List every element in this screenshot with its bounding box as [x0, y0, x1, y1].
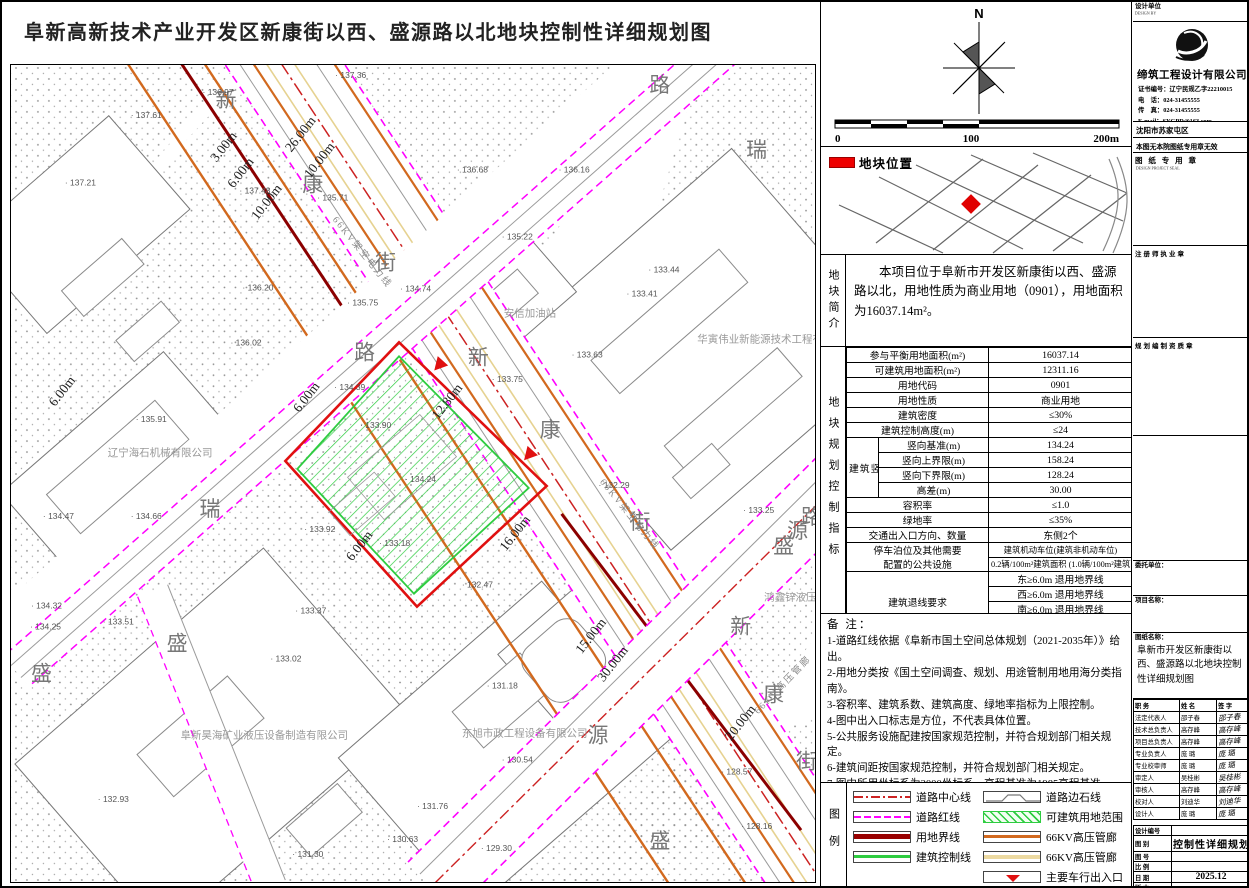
spot-elevation: · 133.90: [360, 420, 391, 430]
spot-elevation: · 134.32: [31, 601, 62, 611]
sig-signature: 庞 璐: [1217, 759, 1249, 771]
info-row: 日 期2025.12: [1134, 872, 1249, 883]
intro-text: 本项目位于阜新市开发区新康街以西、盛源路以北，用地性质为商业用地（0901），用…: [846, 255, 1131, 346]
site-intro-section: 地块简介 本项目位于阜新市开发区新康街以西、盛源路以北，用地性质为商业用地（09…: [821, 255, 1131, 347]
road-name-char: 盛: [167, 632, 188, 656]
project-name-label: 项目名称：: [1133, 596, 1249, 605]
param-row-vertical: 高差(m)30.00: [847, 483, 1132, 498]
legend-item: 道路红线: [853, 809, 979, 824]
sig-role: 专业负责人: [1134, 747, 1180, 759]
spot-elevation: · 134.24: [405, 474, 436, 484]
drawing-name-area: 图纸名称： 阜新市开发区新康街以西、盛源路以北地块控制性详细规划图: [1133, 633, 1249, 699]
centerline-swatch: [853, 791, 911, 803]
power1-swatch: [983, 831, 1041, 843]
spot-elevation: · 133.25: [743, 505, 774, 515]
param-row-vertical: 竖向上界限(m)158.24: [847, 453, 1132, 468]
spot-elevation: · 136.68: [457, 165, 488, 175]
project-seal-label: 图 纸 专 用 章: [1133, 153, 1249, 166]
company-fax: 传 真：024-31455555: [1138, 106, 1246, 117]
design-unit-label-en: DESIGN BY: [1133, 11, 1239, 16]
sig-name: 高存峰: [1180, 723, 1217, 735]
vertical-group-label: 建筑竖向界限: [847, 438, 879, 498]
curb-swatch: [983, 791, 1041, 803]
sig-name: 庞 璐: [1180, 747, 1217, 759]
spot-elevation: · 135.75: [347, 297, 378, 307]
note-item: 6-建筑间距按国家规范控制，并符合规划部门相关规定。: [827, 761, 1125, 777]
signature-row: 项目总负责人高存峰高存峰: [1134, 735, 1249, 747]
page-title: 阜新高新技术产业开发区新康街以西、盛源路以北地块控制性详细规划图: [24, 16, 712, 45]
spare-area: [1133, 436, 1249, 561]
road-name-char: 路: [354, 340, 375, 364]
spot-elevation: · 128.16: [741, 821, 772, 831]
spot-elevation: · 136.16: [559, 165, 590, 175]
legend-item: 可建筑用地范围: [983, 809, 1131, 824]
sig-name: 刘迪华: [1180, 795, 1217, 807]
project-name-area: 项目名称：: [1133, 596, 1249, 633]
param-row-vertical: 建筑竖向界限竖向基准(m)134.24: [847, 438, 1132, 453]
sig-name: 邵子春: [1180, 711, 1217, 723]
drawing-name-label: 图纸名称：: [1133, 633, 1249, 642]
sig-signature: 邵子春: [1217, 711, 1249, 723]
legend-item-label: 66KV高压管廊: [1046, 829, 1117, 845]
legend-item: 66KV高压管廊: [983, 849, 1131, 864]
sig-name: 庞 璐: [1180, 807, 1217, 819]
road-name-char: 新: [730, 615, 751, 639]
param-row: 交通出入口方向、数量东侧2个: [847, 528, 1132, 543]
legend-item-label: 道路中心线: [916, 789, 971, 805]
sig-role: 项目总负责人: [1134, 735, 1180, 747]
spot-elevation: · 133.02: [270, 654, 301, 664]
company-address: 沈阳市苏家屯区: [1133, 122, 1249, 138]
legend-item: 建筑控制线: [853, 849, 979, 864]
sig-signature: 刘迪华: [1217, 795, 1249, 807]
road-name-char: 盛: [31, 661, 52, 685]
note-item: 4-图中出入口标志是方位，不代表具体位置。: [827, 714, 1125, 730]
param-row: 用地性质商业用地: [847, 393, 1132, 408]
legend-column-right: 道路边石线可建筑用地范围66KV高压管廊66KV高压管廊主要车行出入口: [983, 789, 1131, 884]
sig-name: 高存峰: [1180, 783, 1217, 795]
spot-elevation: · 133.75: [492, 374, 523, 384]
legend-side-label: 图例: [821, 783, 846, 886]
spot-elevation: · 133.41: [626, 288, 657, 298]
spot-elevation: · 133.18: [379, 538, 410, 548]
spot-elevation: · 133.37: [295, 606, 326, 616]
legend-item: 66KV高压管廊: [983, 829, 1131, 844]
notes-list: 1-道路红线依据《阜新市国土空间总体规划（2021-2035年）》给出。2-用地…: [827, 634, 1125, 783]
client-area: 委托单位：: [1133, 561, 1249, 596]
qualification-seal-label: 规划编制资质章: [1133, 338, 1249, 350]
signature-row: 审核人高存峰高存峰: [1134, 783, 1249, 795]
sig-role: 审核人: [1134, 783, 1180, 795]
sig-signature: 高存峰: [1217, 735, 1249, 747]
sig-role: 设计人: [1134, 807, 1180, 819]
scale-bar: 0 100 200m: [835, 120, 1119, 145]
road-name-char: 瑞: [200, 497, 221, 521]
entrance-swatch: [983, 871, 1041, 883]
spot-elevation: · 130.63: [387, 834, 418, 844]
map-frame[interactable]: 新康街路瑞路瑞盛盛新康街路源盛新康街源盛 · 137.61· 137.21· 1…: [10, 64, 816, 883]
spot-elevation: · 136.02: [230, 337, 261, 347]
spot-elevation: · 131.18: [487, 680, 518, 690]
road-name-char: 路: [649, 73, 670, 97]
param-row: 绿地率≤35%: [847, 513, 1132, 528]
spot-elevation: · 131.76: [417, 801, 448, 811]
spot-elevation: · 135.22: [502, 232, 533, 242]
map-pane: 阜新高新技术产业开发区新康街以西、盛源路以北地块控制性详细规划图: [2, 2, 821, 888]
company-name: 缔筑工程设计有限公司: [1133, 67, 1249, 82]
params-side-label: 地块规划控制指标: [821, 347, 846, 613]
road-name-char: 盛: [773, 534, 794, 558]
legend-section: 图例 道路中心线道路红线用地界线建筑控制线 道路边石线可建筑用地范围66KV高压…: [821, 783, 1131, 886]
sig-header: 姓 名: [1180, 700, 1217, 712]
spot-elevation: · 130.54: [502, 754, 533, 764]
site-marker: [961, 194, 981, 214]
sig-signature: 吴桂彬: [1217, 771, 1249, 783]
sig-header: 签 字: [1217, 700, 1249, 712]
client-label: 委托单位：: [1133, 561, 1249, 570]
sig-header: 职 务: [1134, 700, 1180, 712]
north-label: N: [974, 6, 983, 21]
spot-elevation: · 137.61: [131, 110, 162, 120]
sig-role: 专业校审师: [1134, 759, 1180, 771]
plan-map-svg: 新康街路瑞路瑞盛盛新康街路源盛新康街源盛 · 137.61· 137.21· 1…: [11, 65, 815, 882]
drawing-name: 阜新市开发区新康街以西、盛源路以北地块控制性详细规划图: [1133, 642, 1249, 689]
site-location-legend: 地块位置: [829, 153, 913, 172]
spot-elevation: · 135.91: [136, 414, 167, 424]
buildable-swatch: [983, 811, 1041, 823]
signature-table: 职 务姓 名签 字法定代表人邵子春邵子春技术总负责人高存峰高存峰项目总负责人高存…: [1133, 699, 1249, 820]
company-logo-icon: [1172, 25, 1212, 65]
signature-row: 专业校审师庞 璐庞 璐: [1134, 759, 1249, 771]
sig-name: 庞 璐: [1180, 759, 1217, 771]
spot-elevation: · 135.71: [317, 193, 348, 203]
sig-role: 法定代表人: [1134, 711, 1180, 723]
road-name-char: 康: [540, 418, 561, 442]
sig-signature: 庞 璐: [1217, 747, 1249, 759]
legend-item-label: 用地界线: [916, 829, 960, 845]
notes-title: 备 注：: [827, 617, 1125, 634]
registered-seal-label: 注册师执业章: [1133, 246, 1249, 258]
info-row: 版 本: [1134, 883, 1249, 888]
spot-elevation: · 134.25: [30, 622, 61, 632]
legend-item-label: 道路边石线: [1046, 789, 1101, 805]
param-row: 参与平衡用地面积(m²)16037.14: [847, 348, 1132, 363]
site-location-label: 地块位置: [859, 153, 913, 172]
legend-item: 用地界线: [853, 829, 979, 844]
legend-item-label: 66KV高压管廊: [1046, 849, 1117, 865]
boundary-swatch: [853, 831, 911, 843]
spot-elevation: · 136.97: [203, 87, 234, 97]
info-row: 图 号: [1134, 852, 1249, 862]
company-cert-no: 证书编号：辽宁民规乙字22210015: [1138, 85, 1246, 96]
legend-item: 道路中心线: [853, 789, 979, 804]
spot-elevation: · 133.92: [304, 524, 335, 534]
notes-section: 备 注： 1-道路红线依据《阜新市国土空间总体规划（2021-2035年）》给出…: [821, 614, 1131, 783]
sig-name: 高存峰: [1180, 735, 1217, 747]
sig-name: 吴桂彬: [1180, 771, 1217, 783]
seal-disclaimer: 本图无本院图纸专用章无效: [1133, 138, 1249, 153]
note-item: 2-用地分类按《国土空间调查、规划、用途管制用地用海分类指南》。: [827, 666, 1125, 698]
legend-item-label: 可建筑用地范围: [1046, 809, 1123, 825]
legend-item: 道路边石线: [983, 789, 1131, 804]
spot-elevation: · 132.47: [462, 580, 493, 590]
spot-elevation: · 129.30: [481, 843, 512, 853]
scale-tick-200: 200m: [1093, 133, 1119, 145]
compass-rose-icon: [943, 22, 1015, 114]
design-unit-label: 设计单位: [1133, 2, 1249, 11]
scale-tick-100: 100: [963, 133, 980, 145]
power2-swatch: [983, 851, 1041, 863]
spot-elevation: · 133.51: [103, 617, 134, 627]
param-row: 用地代码0901: [847, 378, 1132, 393]
signature-row: 设计人庞 璐庞 璐: [1134, 807, 1249, 819]
intro-side-label: 地块简介: [821, 255, 846, 346]
spot-elevation: · 137.36: [335, 70, 366, 80]
company-name-label: 鸿鑫锌液压: [764, 591, 815, 604]
project-seal-label-en: DESIGN PROJECT SEAL: [1133, 166, 1239, 171]
spot-elevation: · 131.30: [292, 849, 323, 859]
road-name-char: 街: [796, 749, 815, 773]
spot-elevation: · 133.63: [572, 349, 603, 359]
signature-row: 技术总负责人高存峰高存峰: [1134, 723, 1249, 735]
control-indicators-section: 地块规划控制指标 参与平衡用地面积(m²)16037.14可建筑用地面积(m²)…: [821, 347, 1131, 614]
sig-role: 校对人: [1134, 795, 1180, 807]
note-item: 3-容积率、建筑系数、建筑高度、绿地率指标为上限控制。: [827, 698, 1125, 714]
spot-elevation: · 134.47: [43, 511, 74, 521]
spot-elevation: · 134.66: [131, 511, 162, 521]
note-item: 5-公共服务设施配建按国家规范控制，并符合规划部门相关规定。: [827, 730, 1125, 762]
signature-row: 审定人吴桂彬吴桂彬: [1134, 771, 1249, 783]
company-name-label: 安信加油站: [504, 306, 557, 319]
signature-row: 校对人刘迪华刘迪华: [1134, 795, 1249, 807]
road-name-char: 盛: [649, 829, 670, 853]
registered-seal-area: 注册师执业章: [1133, 246, 1249, 338]
sig-role: 技术总负责人: [1134, 723, 1180, 735]
scale-tick-0: 0: [835, 133, 841, 145]
legend-item-label: 建筑控制线: [916, 849, 971, 865]
signature-row: 专业负责人庞 璐庞 璐: [1134, 747, 1249, 759]
signature-row: 法定代表人邵子春邵子春: [1134, 711, 1249, 723]
param-row: 容积率≤1.0: [847, 498, 1132, 513]
compass-box: N: [821, 2, 1131, 147]
param-row: 可建筑用地面积(m²)12311.16: [847, 363, 1132, 378]
legend-column-left: 道路中心线道路红线用地界线建筑控制线: [853, 789, 979, 884]
company-name-label: 华寅伟业新能源技术工程有限公司: [697, 332, 815, 345]
company-name-label: 辽宁海石机械有限公司: [108, 446, 213, 459]
info-row: 设计编号: [1134, 826, 1249, 836]
param-row-parking: 停车泊位及其他需要配置的公共设施建筑机动车位(建筑非机动车位): [847, 543, 1132, 558]
company-name-label: 东旭市政工程设备有限公司: [462, 726, 588, 739]
drawing-info-table: 设计编号图 别控制性详细规划图 号比 例日 期2025.12版 本: [1133, 825, 1249, 888]
project-seal-area: 图 纸 专 用 章 DESIGN PROJECT SEAL: [1133, 153, 1249, 246]
legend-item-label: 道路红线: [916, 809, 960, 825]
info-panel: N: [821, 2, 1132, 888]
control-indicators-table: 参与平衡用地面积(m²)16037.14可建筑用地面积(m²)12311.16用…: [846, 347, 1131, 614]
qualification-seal-area: 规划编制资质章: [1133, 338, 1249, 436]
road-name-char: 瑞: [746, 138, 767, 162]
spot-elevation: · 133.44: [648, 264, 679, 274]
road-name-char: 新: [468, 345, 489, 369]
titleblock: 设计单位 DESIGN BY 缔筑工程设计有限公司 证书编号：辽宁民规乙字222…: [1133, 2, 1249, 888]
info-row: 比 例: [1134, 862, 1249, 872]
param-row-vertical: 竖向下界限(m)128.24: [847, 468, 1132, 483]
company-tel: 电 话：024-31455555: [1138, 96, 1246, 107]
spot-elevation: · 136.20: [242, 282, 273, 292]
locator-box: 地块位置: [821, 147, 1131, 255]
sig-signature: 高存峰: [1217, 783, 1249, 795]
param-row: 建筑密度≤30%: [847, 408, 1132, 423]
info-row: 图 别控制性详细规划: [1134, 836, 1249, 852]
spot-elevation: · 128.57: [721, 766, 752, 776]
spot-elevation: · 132.93: [98, 794, 129, 804]
north-arrow-and-scale: N: [821, 2, 1131, 146]
spot-elevation: · 134.74: [400, 283, 431, 293]
param-row-setback: 建筑退线要求东≥6.0m 退用地界线: [847, 572, 1132, 587]
sig-signature: 高存峰: [1217, 723, 1249, 735]
road-name-char: 源: [588, 723, 609, 747]
plan-sheet: 阜新高新技术产业开发区新康街以西、盛源路以北地块控制性详细规划图: [0, 0, 1249, 888]
spot-elevation: · 134.39: [334, 382, 365, 392]
spot-elevation: · 137.21: [65, 178, 96, 188]
note-item: 1-道路红线依据《阜新市国土空间总体规划（2021-2035年）》给出。: [827, 634, 1125, 666]
controlline-swatch: [853, 851, 911, 863]
sig-role: 审定人: [1134, 771, 1180, 783]
legend-item: 主要车行出入口: [983, 869, 1131, 884]
company-name-label: 阜新昊海矿业液压设备制造有限公司: [181, 728, 348, 741]
param-row: 建筑控制高度(m)≤24: [847, 423, 1132, 438]
site-location-swatch: [829, 157, 855, 168]
sig-signature: 庞 璐: [1217, 807, 1249, 819]
redline-swatch: [853, 811, 911, 823]
legend-item-label: 主要车行出入口: [1046, 869, 1123, 885]
